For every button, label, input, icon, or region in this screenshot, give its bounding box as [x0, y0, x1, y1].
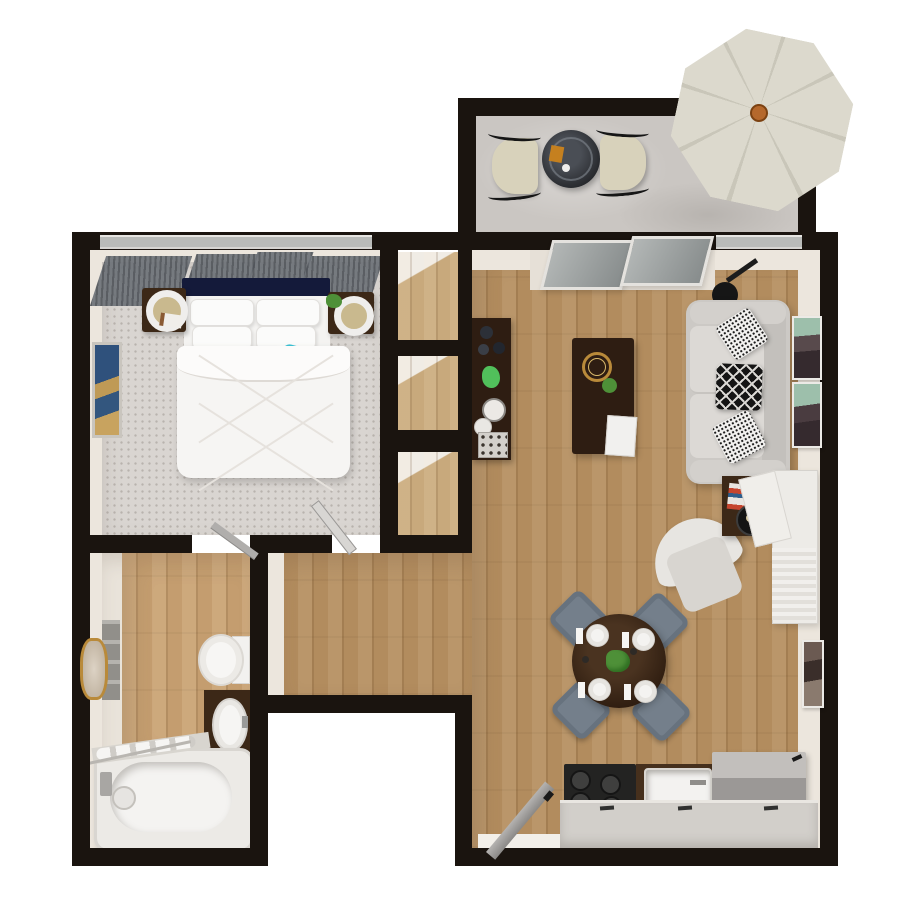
living-room-window: [716, 235, 802, 249]
wall-notch-top: [250, 695, 472, 713]
place-setting-napkin: [576, 628, 583, 644]
wall-closet-right: [458, 250, 472, 553]
stove-burner: [570, 770, 591, 791]
toilet-bowl: [198, 634, 244, 686]
place-setting-plate: [588, 678, 611, 701]
console-vase-3: [493, 342, 505, 354]
stove-burner: [600, 774, 621, 795]
floor-plan: [0, 0, 900, 900]
place-setting-napkin: [578, 682, 585, 698]
patio-chair-right: [600, 134, 646, 190]
patio-chair-left: [492, 138, 538, 194]
green-bowl-decor: [602, 378, 617, 393]
place-setting-napkin: [622, 632, 629, 648]
umbrella-finial: [750, 104, 768, 122]
wall-closet-divider-1: [398, 340, 458, 356]
console-plant: [482, 366, 500, 388]
place-setting-plate: [586, 624, 609, 647]
wall-closet-left: [380, 250, 398, 553]
sink-faucet: [242, 716, 248, 728]
console-tray: [478, 432, 508, 458]
wall-art-dark: [802, 640, 824, 708]
hallway-floor: [268, 553, 472, 695]
wall-patio-left: [458, 98, 476, 250]
patio-table-cup: [562, 164, 570, 172]
wall-bottom-kitchen: [455, 848, 838, 866]
kitchen-faucet: [690, 780, 706, 785]
table-cup: [582, 656, 589, 663]
console-vase-2: [478, 344, 489, 355]
wall-closet-divider-2: [398, 430, 458, 452]
nightstand-plant: [326, 294, 342, 308]
patio-table-card: [549, 145, 565, 163]
bedroom-wall-art: [92, 342, 122, 438]
desk-tambour-front: [772, 548, 816, 620]
hallway-wall-face-left: [268, 553, 284, 695]
wall-bottom-bathroom: [72, 848, 268, 866]
wall-art-teal-2: [792, 382, 822, 448]
wall-art-teal-1: [792, 316, 822, 380]
place-setting-plate: [632, 628, 655, 651]
sofa-backrest: [762, 306, 786, 478]
console-vase-1: [480, 326, 493, 339]
wall-middle-a: [72, 535, 192, 553]
white-pillow-1: [190, 299, 254, 326]
place-setting-napkin: [624, 684, 631, 700]
wall-right: [820, 232, 838, 866]
white-pillow-2: [256, 299, 320, 326]
table-centerpiece-plant: [606, 650, 630, 672]
magazine: [605, 415, 638, 457]
bedroom-window: [100, 235, 372, 249]
bathroom-mirror: [80, 638, 108, 700]
bed-headboard: [182, 278, 330, 298]
bathtub-drain: [112, 786, 136, 810]
table-cup: [630, 648, 637, 655]
closet-niche-2: [398, 356, 458, 430]
sliding-glass-door-panel-2: [620, 236, 714, 286]
bed-duvet-fold: [177, 346, 350, 382]
wall-notch-right: [455, 695, 472, 866]
bathtub-faucet: [100, 772, 112, 796]
sofa-pillow-diamond: [715, 363, 763, 411]
closet-niche-1: [398, 252, 458, 340]
place-setting-plate: [634, 680, 657, 703]
closet-niche-3: [398, 452, 458, 535]
